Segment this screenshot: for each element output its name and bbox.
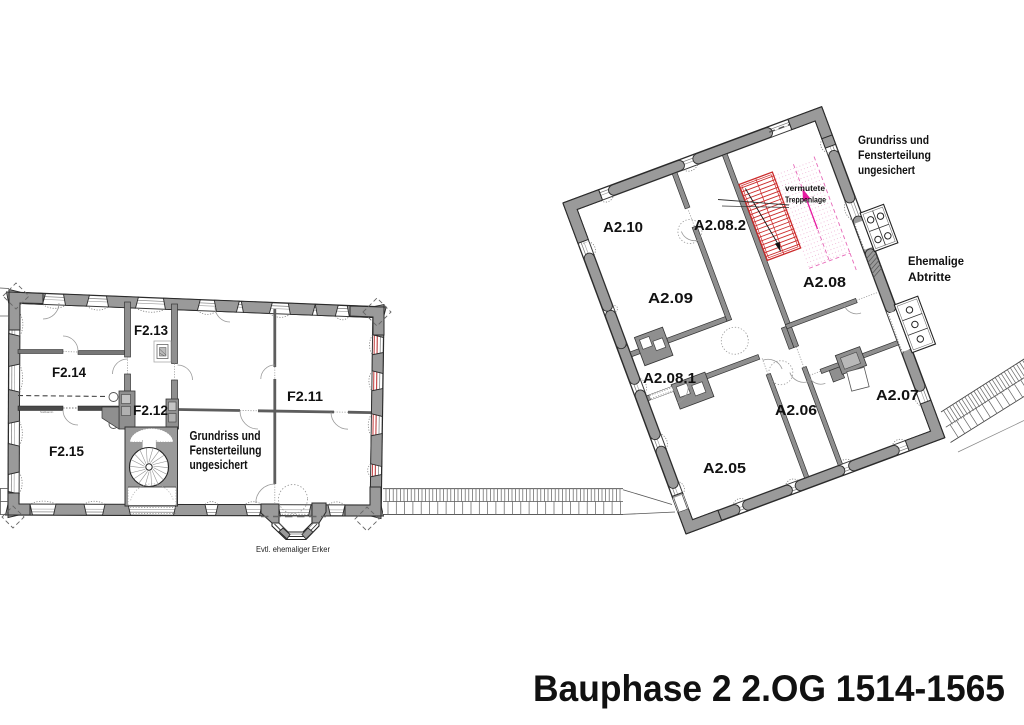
- svg-text:F2.11: F2.11: [287, 388, 323, 404]
- svg-text:A2.06: A2.06: [775, 403, 817, 419]
- svg-text:Grundriss und: Grundriss und: [190, 429, 261, 443]
- svg-text:ungesichert: ungesichert: [858, 165, 915, 177]
- svg-text:Grundriss und: Grundriss und: [858, 135, 929, 147]
- svg-text:ungesichert: ungesichert: [190, 458, 249, 472]
- svg-text:A2.08.1: A2.08.1: [643, 371, 696, 387]
- svg-text:Fensterteilung: Fensterteilung: [858, 150, 931, 162]
- svg-text:Abtritte: Abtritte: [908, 272, 951, 284]
- svg-text:Südkamin: Südkamin: [40, 410, 54, 414]
- svg-text:A2.07: A2.07: [876, 388, 919, 404]
- svg-text:F2.15: F2.15: [49, 443, 84, 459]
- svg-text:Evtl. ehemaliger Erker: Evtl. ehemaliger Erker: [256, 544, 330, 554]
- svg-text:A2.08: A2.08: [803, 275, 846, 291]
- svg-text:F2.14: F2.14: [52, 364, 86, 380]
- svg-text:F2.13: F2.13: [134, 322, 168, 338]
- svg-text:A2.05: A2.05: [703, 461, 746, 477]
- svg-text:vermutete: vermutete: [785, 183, 825, 193]
- svg-text:A2.10: A2.10: [603, 220, 643, 236]
- svg-text:Fensterteilung: Fensterteilung: [190, 444, 262, 458]
- svg-text:A2.09: A2.09: [648, 291, 693, 307]
- svg-text:Ehemalige: Ehemalige: [908, 256, 964, 268]
- svg-text:Bauphase 2 2.OG 1514-1565: Bauphase 2 2.OG 1514-1565: [533, 668, 1005, 709]
- svg-text:A2.08.2: A2.08.2: [694, 218, 746, 234]
- svg-text:F2.12: F2.12: [133, 402, 168, 418]
- svg-text:Treppenlage: Treppenlage: [785, 195, 826, 205]
